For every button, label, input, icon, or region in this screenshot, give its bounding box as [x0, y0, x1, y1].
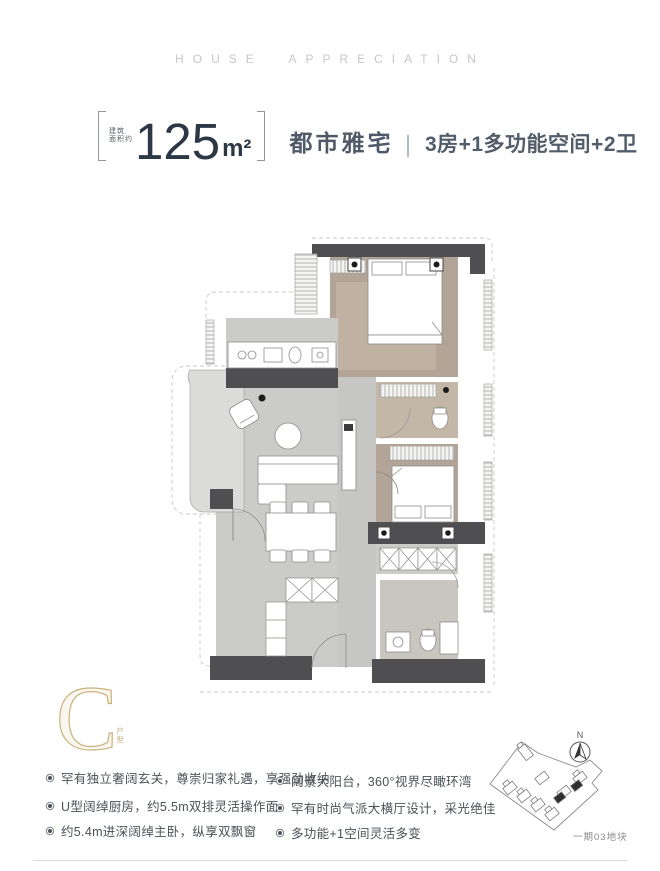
area-label-line1: 建筑	[109, 128, 133, 137]
storage-cabinets	[380, 548, 456, 570]
poster-page: HOUSE APPRECIATION 建筑 面积约 125 m² 都市雅宅 3房…	[0, 0, 660, 871]
floor-plan	[140, 222, 520, 708]
feature-item: 约5.4m进深阔绰主卧，纵享双飘窗	[48, 821, 256, 840]
site-map: N 一期03地块	[480, 726, 652, 858]
footer-divider	[33, 860, 627, 861]
bullet-icon	[278, 779, 282, 783]
svg-text:N: N	[577, 730, 584, 740]
area-label: 建筑 面积约	[109, 128, 133, 145]
floor-plan-image	[140, 222, 520, 708]
estate-type-title: 都市雅宅	[289, 124, 393, 158]
feature-text: 阔景大阳台，360°视界尽瞰环湾	[291, 771, 472, 790]
bullet-icon	[48, 829, 52, 833]
compass-icon: N	[570, 730, 590, 762]
bullet-icon	[278, 806, 282, 810]
bullet-icon	[48, 804, 52, 808]
feature-text: 多功能+1空间灵活多变	[291, 823, 421, 842]
round-table-icon	[275, 423, 301, 449]
master-bed-icon	[368, 259, 442, 344]
dining-set-icon	[266, 502, 336, 562]
title-block: 建筑 面积约 125 m² 都市雅宅 3房+1多功能空间+2卫	[98, 106, 638, 166]
layout-description: 3房+1多功能空间+2卫	[425, 128, 638, 158]
feature-item: 罕有时尚气派大横厅设计，采光绝佳	[278, 798, 496, 817]
feature-text: U型阔绰厨房，约5.5m双排灵活操作面	[61, 796, 279, 815]
bullet-icon	[278, 831, 282, 835]
sofa-icon	[258, 456, 338, 484]
second-bed-icon	[392, 466, 454, 522]
bullet-icon	[48, 776, 52, 780]
kitchen-counter	[228, 342, 336, 368]
title-divider	[407, 135, 409, 157]
feature-text: 罕有时尚气派大横厅设计，采光绝佳	[291, 798, 496, 817]
feature-item: U型阔绰厨房，约5.5m双排灵活操作面	[48, 796, 279, 815]
site-map-image: N 一期03地块	[480, 726, 652, 858]
feature-item: 多功能+1空间灵活多变	[278, 823, 421, 842]
area-unit: m²	[222, 135, 251, 163]
right-bracket-decoration	[257, 111, 265, 161]
page-header-title: HOUSE APPRECIATION	[0, 52, 660, 66]
area-value: 125	[135, 119, 220, 166]
plot-label: 一期03地块	[573, 831, 628, 843]
unit-letter-caption: 户型	[114, 727, 124, 745]
left-bracket-decoration	[98, 111, 106, 161]
feature-item: 阔景大阳台，360°视界尽瞰环湾	[278, 771, 472, 790]
area-label-line2: 面积约	[109, 136, 133, 145]
unit-letter: C	[56, 672, 117, 764]
feature-text: 约5.4m进深阔绰主卧，纵享双飘窗	[61, 821, 256, 840]
